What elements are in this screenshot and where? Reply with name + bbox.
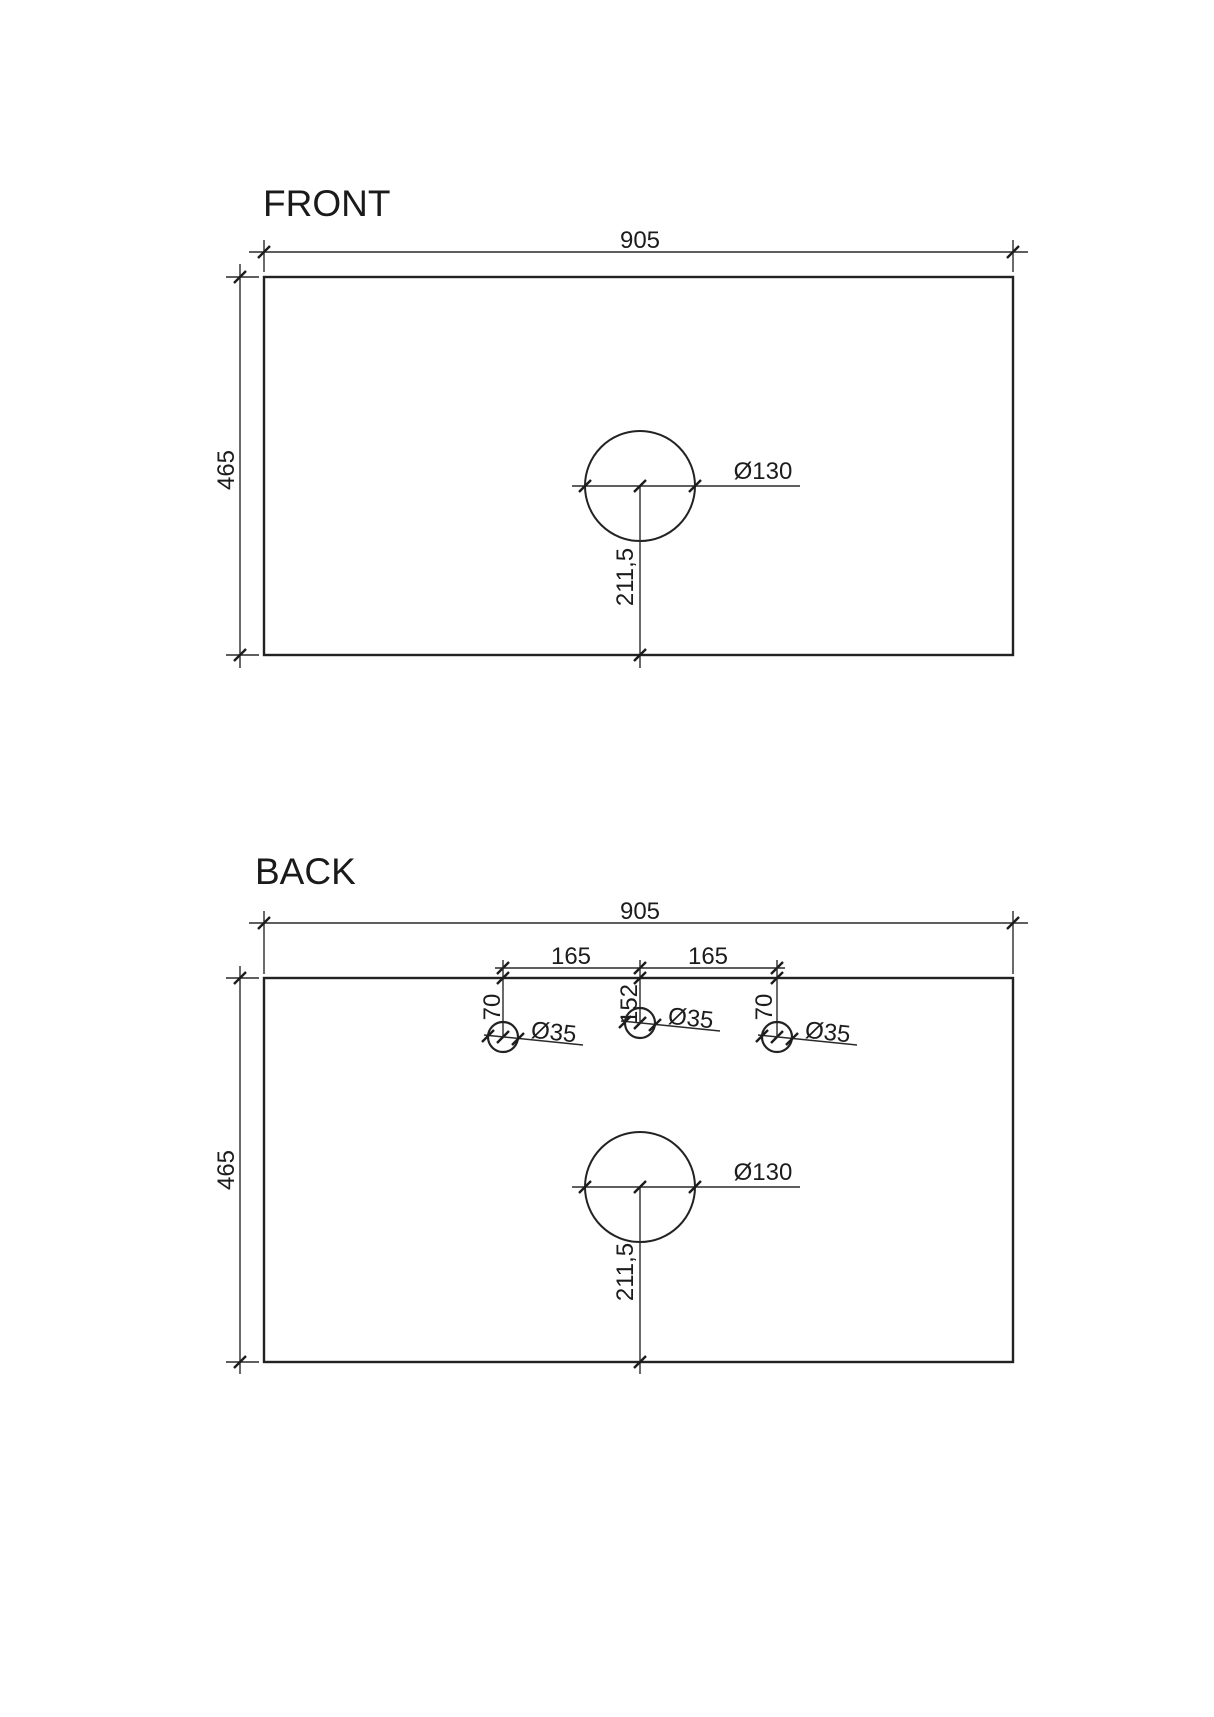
front-height-value: 465 — [213, 450, 240, 490]
drawing-sheet: FRONT 905 465 Ø130 — [0, 0, 1214, 1717]
back-view-title: BACK — [255, 851, 356, 892]
front-height-dimension: 465 — [213, 264, 259, 668]
front-view-title: FRONT — [263, 183, 390, 224]
back-basin-offset-value: 211,5 — [612, 1243, 639, 1301]
back-width-dimension: 905 — [249, 898, 1028, 974]
tap-hole-right-diameter-callout: Ø35 — [756, 1017, 857, 1049]
back-height-value: 465 — [213, 1150, 240, 1190]
back-view: BACK 905 465 165 165 — [213, 851, 1028, 1374]
tap-hole-left-diameter-callout: Ø35 — [482, 1017, 583, 1049]
front-view: FRONT 905 465 Ø130 — [213, 183, 1028, 668]
tap-hole-spacing-right-value: 165 — [688, 943, 728, 970]
back-width-value: 905 — [620, 898, 660, 925]
tap-hole-left-diameter-value: Ø35 — [530, 1017, 578, 1049]
back-basin-diameter-dimension: Ø130 — [572, 1159, 800, 1193]
front-width-dimension: 905 — [249, 227, 1028, 272]
back-basin-offset-dimension: 211,5 — [612, 1181, 646, 1374]
tap-hole-left-offset-dimension: 70 — [479, 972, 509, 1043]
technical-drawing: FRONT 905 465 Ø130 — [0, 0, 1214, 1717]
back-basin-diameter-value: Ø130 — [734, 1159, 793, 1186]
front-basin-offset-dimension: 211,5 — [612, 480, 646, 668]
tap-hole-right-diameter-value: Ø35 — [804, 1017, 852, 1049]
tap-hole-left-offset-value: 70 — [479, 994, 506, 1021]
tap-hole-middle-offset-dimension: 152 — [616, 972, 646, 1029]
front-width-value: 905 — [620, 227, 660, 254]
tap-hole-middle-diameter-value: Ø35 — [667, 1003, 715, 1035]
front-basin-offset-value: 211,5 — [612, 548, 639, 606]
front-basin-diameter-dimension: Ø130 — [572, 458, 800, 492]
back-height-dimension: 465 — [213, 966, 259, 1374]
back-panel-outline — [264, 978, 1013, 1362]
tap-hole-spacing-left-value: 165 — [551, 943, 591, 970]
front-basin-diameter-value: Ø130 — [734, 458, 793, 485]
tap-hole-right-offset-value: 70 — [751, 994, 778, 1021]
